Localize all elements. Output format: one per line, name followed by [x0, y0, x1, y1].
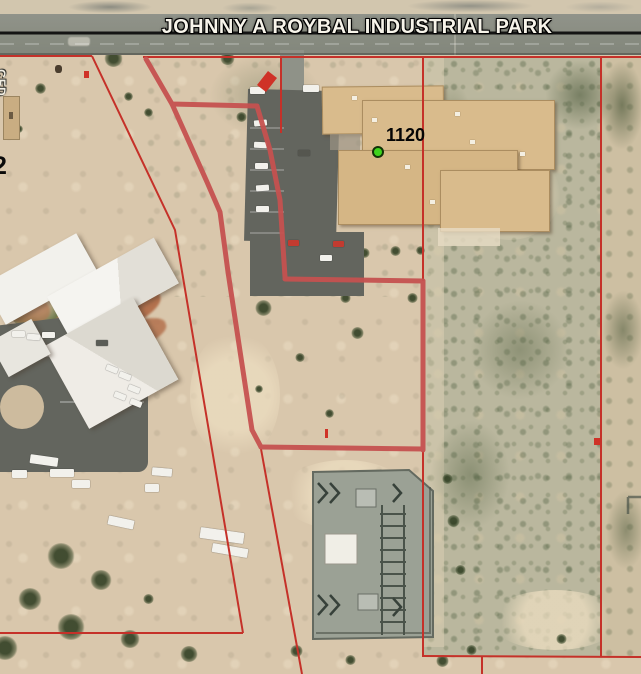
selected-parcel-north	[146, 59, 257, 106]
selected-parcel-west	[172, 104, 261, 447]
parcel-line-diagonal-south	[261, 449, 302, 674]
selected-parcel-jog-east	[285, 279, 423, 281]
selected-parcel-south	[261, 447, 423, 449]
fence-fragment-east	[628, 497, 641, 514]
survey-tick	[84, 71, 89, 78]
red-flag-marker[interactable]	[257, 71, 277, 92]
parcel-point-marker[interactable]	[372, 146, 384, 158]
survey-tick	[594, 438, 600, 445]
electrical-substation	[313, 470, 433, 639]
aerial-map[interactable]: JOHNNY A ROYBAL INDUSTRIAL PARK 1120 2 C…	[0, 0, 641, 674]
substation-transformer	[356, 489, 376, 507]
parcel-line-bottom-east	[422, 656, 641, 657]
map-title-banner: JOHNNY A ROYBAL INDUSTRIAL PARK	[162, 16, 553, 39]
parcel-number-label: 1120	[386, 125, 425, 146]
parcel-boundary-overlay	[0, 0, 641, 674]
selected-parcel-outline[interactable]	[146, 59, 423, 450]
truncated-parcel-label: 2	[0, 152, 7, 181]
edge-road-label: CFD	[0, 69, 8, 97]
parcel-line-diagonal-west	[92, 56, 243, 633]
substation-control-building	[325, 534, 357, 564]
survey-tick	[325, 429, 328, 438]
substation-transformer	[358, 594, 378, 610]
